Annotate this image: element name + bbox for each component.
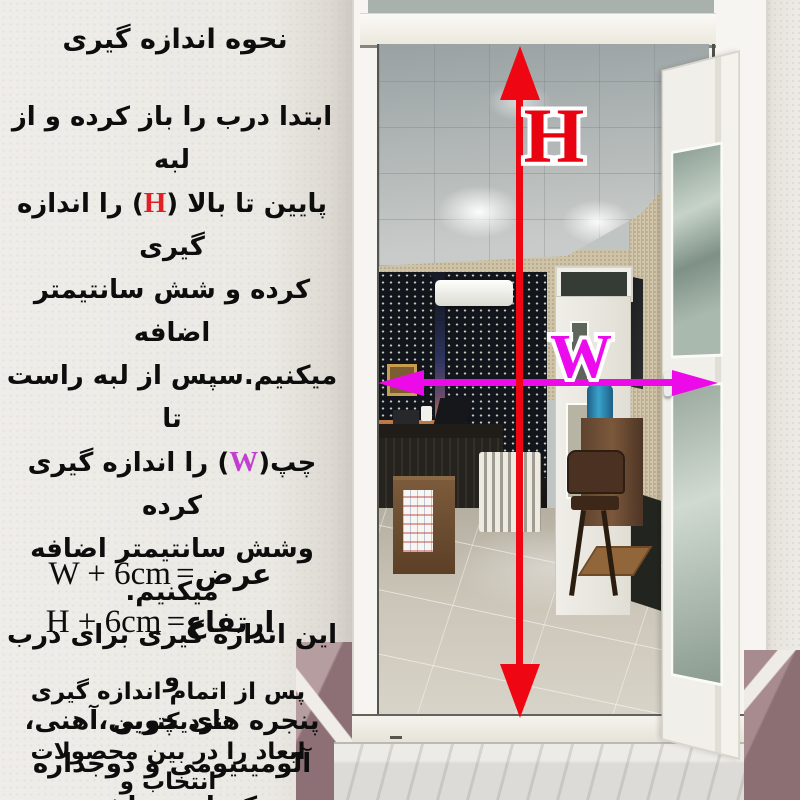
footer-paragraph: پس از اتمام اندازه گیری نزدیکترین ابعاد …	[0, 677, 336, 800]
transom-bar	[360, 13, 716, 48]
instruction-line: پایین تا بالا (H) را اندازه گیری	[4, 182, 340, 269]
chair-backrest	[567, 450, 625, 494]
instruction-line: کرده و شش سانتیمتر اضافه	[4, 269, 340, 355]
instruction-text: چپ(	[258, 448, 316, 478]
width-measure-label: W W	[535, 320, 627, 394]
interior-door-transom-glass	[561, 272, 627, 296]
marble-step	[334, 742, 764, 800]
measurement-guide-image: H H W W نحوه اندازه گیری ابتدا درب را با…	[0, 0, 800, 800]
height-label-text: H	[512, 94, 596, 178]
inline-h-mark: H	[144, 187, 167, 219]
inline-w-mark: W	[229, 446, 258, 478]
open-door-glass-bottom	[671, 382, 723, 686]
width-arrowhead-right-icon	[672, 370, 718, 396]
height-measure-label: H H	[512, 94, 596, 178]
width-arrowhead-left-icon	[378, 370, 424, 396]
mural-building-left	[379, 272, 435, 420]
transom-glass	[368, 0, 714, 13]
open-door-leaf	[662, 50, 740, 760]
mug	[421, 406, 432, 421]
instruction-text: ) را اندازه گیری کرده	[28, 448, 230, 521]
instruction-line: میکنیم.سپس از لبه راست تا	[4, 355, 340, 441]
radiator	[479, 452, 541, 532]
equals-sign: =	[176, 556, 195, 592]
footer-line: پس از اتمام اندازه گیری نزدیکترین	[0, 677, 336, 737]
footer-line: ابعاد را در بین محصولات انتخاب و	[0, 737, 336, 797]
height-formula: ارتفاع= H + 6cm	[0, 598, 320, 646]
desk-top	[379, 424, 503, 438]
width-formula-expr: W + 6cm	[48, 550, 170, 598]
open-door-glass-top	[671, 141, 723, 358]
calendar-sheet	[403, 490, 433, 552]
desk-monitor	[434, 398, 472, 424]
formulas-block: عرض= W + 6cm ارتفاع= H + 6cm	[0, 550, 320, 646]
chair-seat	[571, 496, 619, 510]
equals-sign: =	[167, 604, 186, 640]
instruction-text: پایین تا بالا (	[166, 189, 327, 219]
maroon-tile-right	[744, 650, 800, 800]
page-title: نحوه اندازه گیری	[10, 24, 340, 55]
instruction-line: چپ(W) را اندازه گیری کرده	[4, 441, 340, 528]
air-conditioner	[435, 280, 513, 306]
width-formula-label: عرض	[195, 557, 272, 591]
height-formula-expr: H + 6cm	[46, 598, 162, 646]
width-label-text: W	[535, 320, 627, 394]
instruction-line: ابتدا درب را باز کرده و از لبه	[4, 96, 340, 182]
height-arrow-line	[516, 94, 523, 668]
desk-device	[393, 410, 419, 424]
height-arrowhead-down-icon	[500, 664, 540, 718]
width-formula: عرض= W + 6cm	[0, 550, 320, 598]
height-formula-label: ارتفاع	[185, 605, 274, 639]
threshold-notch	[390, 736, 402, 739]
